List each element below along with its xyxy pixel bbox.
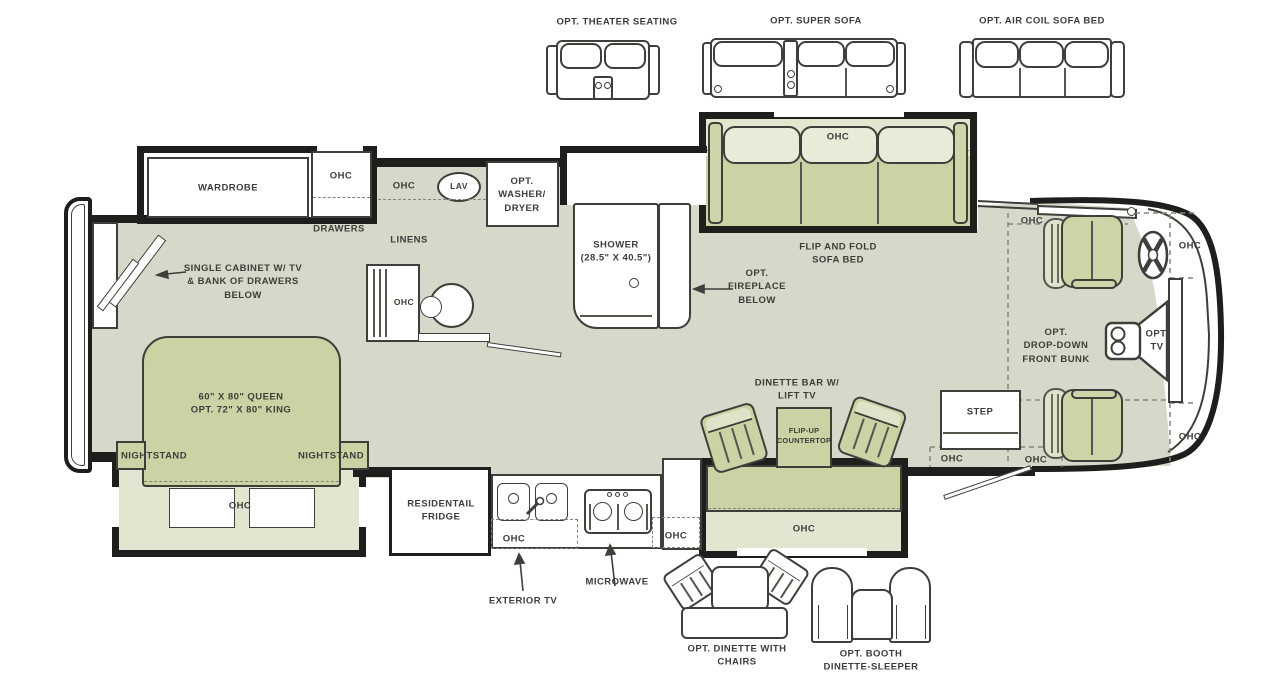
wardrobe-label: WARDROBE xyxy=(198,181,258,194)
shower xyxy=(573,203,659,329)
cab-ohc-bottom-right: OHC xyxy=(1179,430,1201,443)
bed-slide-ohc-label: OHC xyxy=(229,499,251,512)
sofa-arm-right xyxy=(953,122,968,224)
drawers-label: DRAWERS xyxy=(313,222,365,235)
nightstand-right-label: NIGHTSTAND xyxy=(298,449,364,462)
super-sofa-label: OPT. SUPER SOFA xyxy=(770,14,862,27)
fireplace-label: OPT. FIREPLACE BELOW xyxy=(728,267,786,307)
bed-ohc-door xyxy=(169,488,235,528)
linens-label: LINENS xyxy=(390,233,428,246)
sofa-ohc-label: OHC xyxy=(827,130,849,143)
opt-tv-label: OPT. TV xyxy=(1146,328,1169,355)
bath-ohc-label: OHC xyxy=(393,179,415,192)
step-label: STEP xyxy=(967,405,994,418)
air-coil-sofa-bed-label: OPT. AIR COIL SOFA BED xyxy=(979,14,1105,27)
wardrobe-ohc-label: OHC xyxy=(330,169,352,182)
dash-knob xyxy=(1127,207,1136,216)
kitchen-ohc-left-label: OHC xyxy=(503,532,525,545)
wardrobe-window xyxy=(317,143,363,151)
cab-ohc-top-left: OHC xyxy=(1021,214,1043,227)
fireplace-wall xyxy=(658,203,691,329)
sofa-arm-left xyxy=(708,122,723,224)
dinette-ohc-label: OHC xyxy=(793,522,815,535)
desk-return xyxy=(418,333,490,342)
step-ohc-label: OHC xyxy=(941,452,963,465)
front-bunk-label: OPT. DROP-DOWN FRONT BUNK xyxy=(1022,326,1089,366)
lav-label: LAV xyxy=(450,181,468,193)
single-cabinet-note: SINGLE CABINET W/ TV & BANK OF DRAWERS B… xyxy=(184,262,302,302)
fridge-label: RESIDENTAIL FRIDGE xyxy=(407,498,475,525)
rear-cabinet xyxy=(92,222,118,329)
shower-drain xyxy=(629,278,639,288)
kitchen-ohc-right-label: OHC xyxy=(665,529,687,542)
theater-seating-label: OPT. THEATER SEATING xyxy=(556,15,677,28)
nightstand-left-label: NIGHTSTAND xyxy=(121,449,187,462)
sofa-label: FLIP AND FOLD SOFA BED xyxy=(799,241,877,268)
dinette-counter xyxy=(706,465,902,512)
shower-label: SHOWER (28.5" X 40.5") xyxy=(581,239,652,266)
exterior-tv-label: EXTERIOR TV xyxy=(489,594,557,607)
bed-label: 60" X 80" QUEEN OPT. 72" X 80" KING xyxy=(191,391,291,418)
sofa-back-cushion xyxy=(877,126,955,164)
flip-up-label: FLIP-UP COUNTERTOP xyxy=(777,426,831,446)
dinette-bar-label: DINETTE BAR W/ LIFT TV xyxy=(755,377,839,404)
opt-booth-label: OPT. BOOTH DINETTE-SLEEPER xyxy=(824,648,919,675)
stool-back xyxy=(420,296,442,318)
sofa-window xyxy=(774,108,904,117)
rear-cap xyxy=(64,197,92,473)
opt-dinette-label: OPT. DINETTE WITH CHAIRS xyxy=(688,643,787,670)
bed-ohc-door xyxy=(249,488,315,528)
wardrobe-ohc-box xyxy=(311,151,372,218)
rv-floorplan: OPT. THEATER SEATING OPT. SUPER SOFA OPT… xyxy=(0,0,1279,688)
sofa-back-cushion xyxy=(723,126,801,164)
desk-ohc-label: OHC xyxy=(394,297,414,309)
driver-seat xyxy=(1043,215,1123,292)
cab-ohc-top-right: OHC xyxy=(1179,239,1201,252)
cab-ohc-bottom-left: OHC xyxy=(1025,453,1047,466)
washer-dryer-label: OPT. WASHER/ DRYER xyxy=(498,175,546,215)
passenger-seat xyxy=(1043,385,1123,462)
front-tv xyxy=(1168,278,1183,403)
step-box xyxy=(940,390,1021,450)
sofa-seat xyxy=(706,156,970,226)
microwave-label: MICROWAVE xyxy=(586,575,649,588)
utility-bay xyxy=(560,146,707,205)
